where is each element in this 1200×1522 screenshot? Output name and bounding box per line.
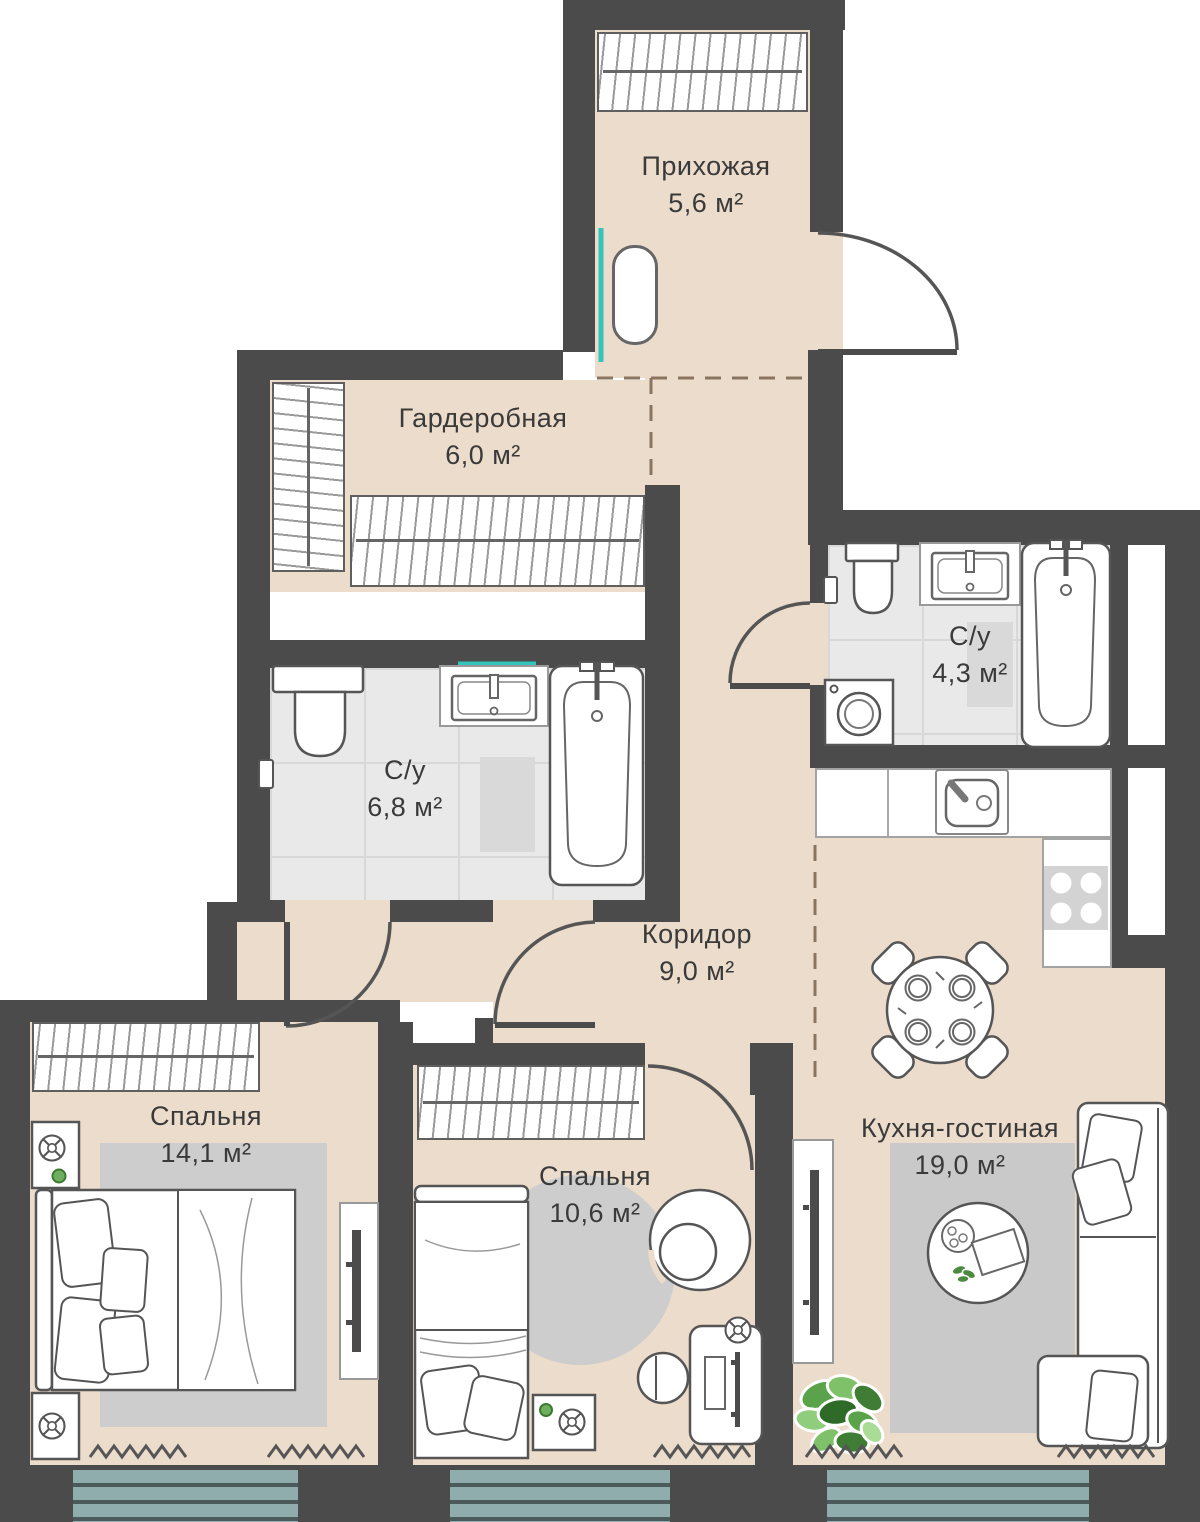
faucet <box>966 551 974 572</box>
room-name: С/у <box>255 752 555 789</box>
radiators <box>90 1446 1154 1457</box>
monitor-icon <box>735 1352 740 1427</box>
radiator-icon <box>268 1446 364 1457</box>
faucet-knob <box>1069 540 1082 549</box>
desk-item <box>705 1357 725 1409</box>
plan-linework <box>0 0 1200 1522</box>
bath-small-door-arc <box>730 603 810 683</box>
room-name: Кухня-гостиная <box>785 1110 1135 1147</box>
room-name: Спальня <box>56 1098 356 1135</box>
faucet-knob <box>600 662 614 671</box>
tv-icon <box>810 1170 819 1335</box>
room-label-kitchen-living: Кухня-гостиная 19,0 м² <box>785 1110 1135 1184</box>
room-area: 19,0 м² <box>785 1147 1135 1184</box>
room-name: Прихожая <box>556 148 856 185</box>
room-name: С/у <box>820 618 1120 655</box>
room-label-corridor: Коридор 9,0 м² <box>547 916 847 990</box>
room-area: 14,1 м² <box>56 1135 356 1172</box>
room-name: Спальня <box>445 1158 745 1195</box>
desk-chair <box>638 1353 688 1403</box>
faucet-knob <box>1050 540 1063 549</box>
room-area: 5,6 м² <box>556 185 856 222</box>
room-area: 10,6 м² <box>445 1195 745 1232</box>
room-name: Гардеробная <box>333 400 633 437</box>
room-label-hallway: Прихожая 5,6 м² <box>556 148 856 222</box>
armchair-seat <box>660 1224 716 1280</box>
toilet-tank <box>846 543 898 561</box>
faucet <box>490 675 498 698</box>
room-area: 6,8 м² <box>255 789 555 826</box>
room-label-bedroom-2: Спальня 10,6 м² <box>445 1158 745 1232</box>
radiator-icon <box>90 1446 186 1457</box>
monitor-bracket <box>731 1360 735 1365</box>
room-area: 6,0 м² <box>333 437 633 474</box>
dining-set <box>868 938 1011 1081</box>
tv-icon <box>352 1230 361 1352</box>
floor-plan: Прихожая 5,6 м² Гардеробная 6,0 м² С/у 6… <box>0 0 1200 1522</box>
tv-bracket <box>346 1320 352 1325</box>
paper-holder <box>824 577 837 603</box>
plant <box>793 1372 888 1458</box>
kitchen-fixtures <box>936 770 1108 930</box>
room-area: 4,3 м² <box>820 655 1120 692</box>
tv-bracket <box>346 1262 352 1267</box>
toilet-bowl <box>295 692 345 756</box>
toilet-bowl <box>854 561 892 613</box>
burner <box>1051 903 1072 924</box>
monitor-bracket <box>731 1412 735 1417</box>
radiator-icon <box>654 1446 750 1457</box>
bath-large-door-arc <box>286 922 390 1026</box>
tv-bracket <box>803 1205 809 1210</box>
room-area: 9,0 м² <box>547 953 847 990</box>
toilet-tank <box>273 666 363 692</box>
room-label-bathroom-large: С/у 6,8 м² <box>255 752 555 826</box>
fan-icon <box>40 1414 65 1439</box>
burner <box>1051 873 1072 894</box>
blanket <box>178 1190 295 1390</box>
bed-headboard <box>36 1190 52 1390</box>
entrance-door-arc <box>818 233 957 350</box>
tv-bracket <box>803 1300 809 1305</box>
burner <box>1081 903 1102 924</box>
bedroom2-door-arc <box>648 1066 752 1170</box>
dining-table <box>887 957 993 1063</box>
bedroom1-furniture <box>32 1122 378 1459</box>
faucet-knob <box>580 662 594 671</box>
room-label-bedroom-1: Спальня 14,1 м² <box>56 1098 356 1172</box>
burner <box>1081 873 1102 894</box>
fan-icon <box>726 1318 751 1343</box>
fan-icon <box>560 1410 585 1435</box>
room-label-bathroom-small: С/у 4,3 м² <box>820 618 1120 692</box>
room-name: Коридор <box>547 916 847 953</box>
tray <box>942 1220 974 1252</box>
plant-pot-icon <box>540 1404 552 1416</box>
room-label-wardrobe: Гардеробная 6,0 м² <box>333 400 633 474</box>
